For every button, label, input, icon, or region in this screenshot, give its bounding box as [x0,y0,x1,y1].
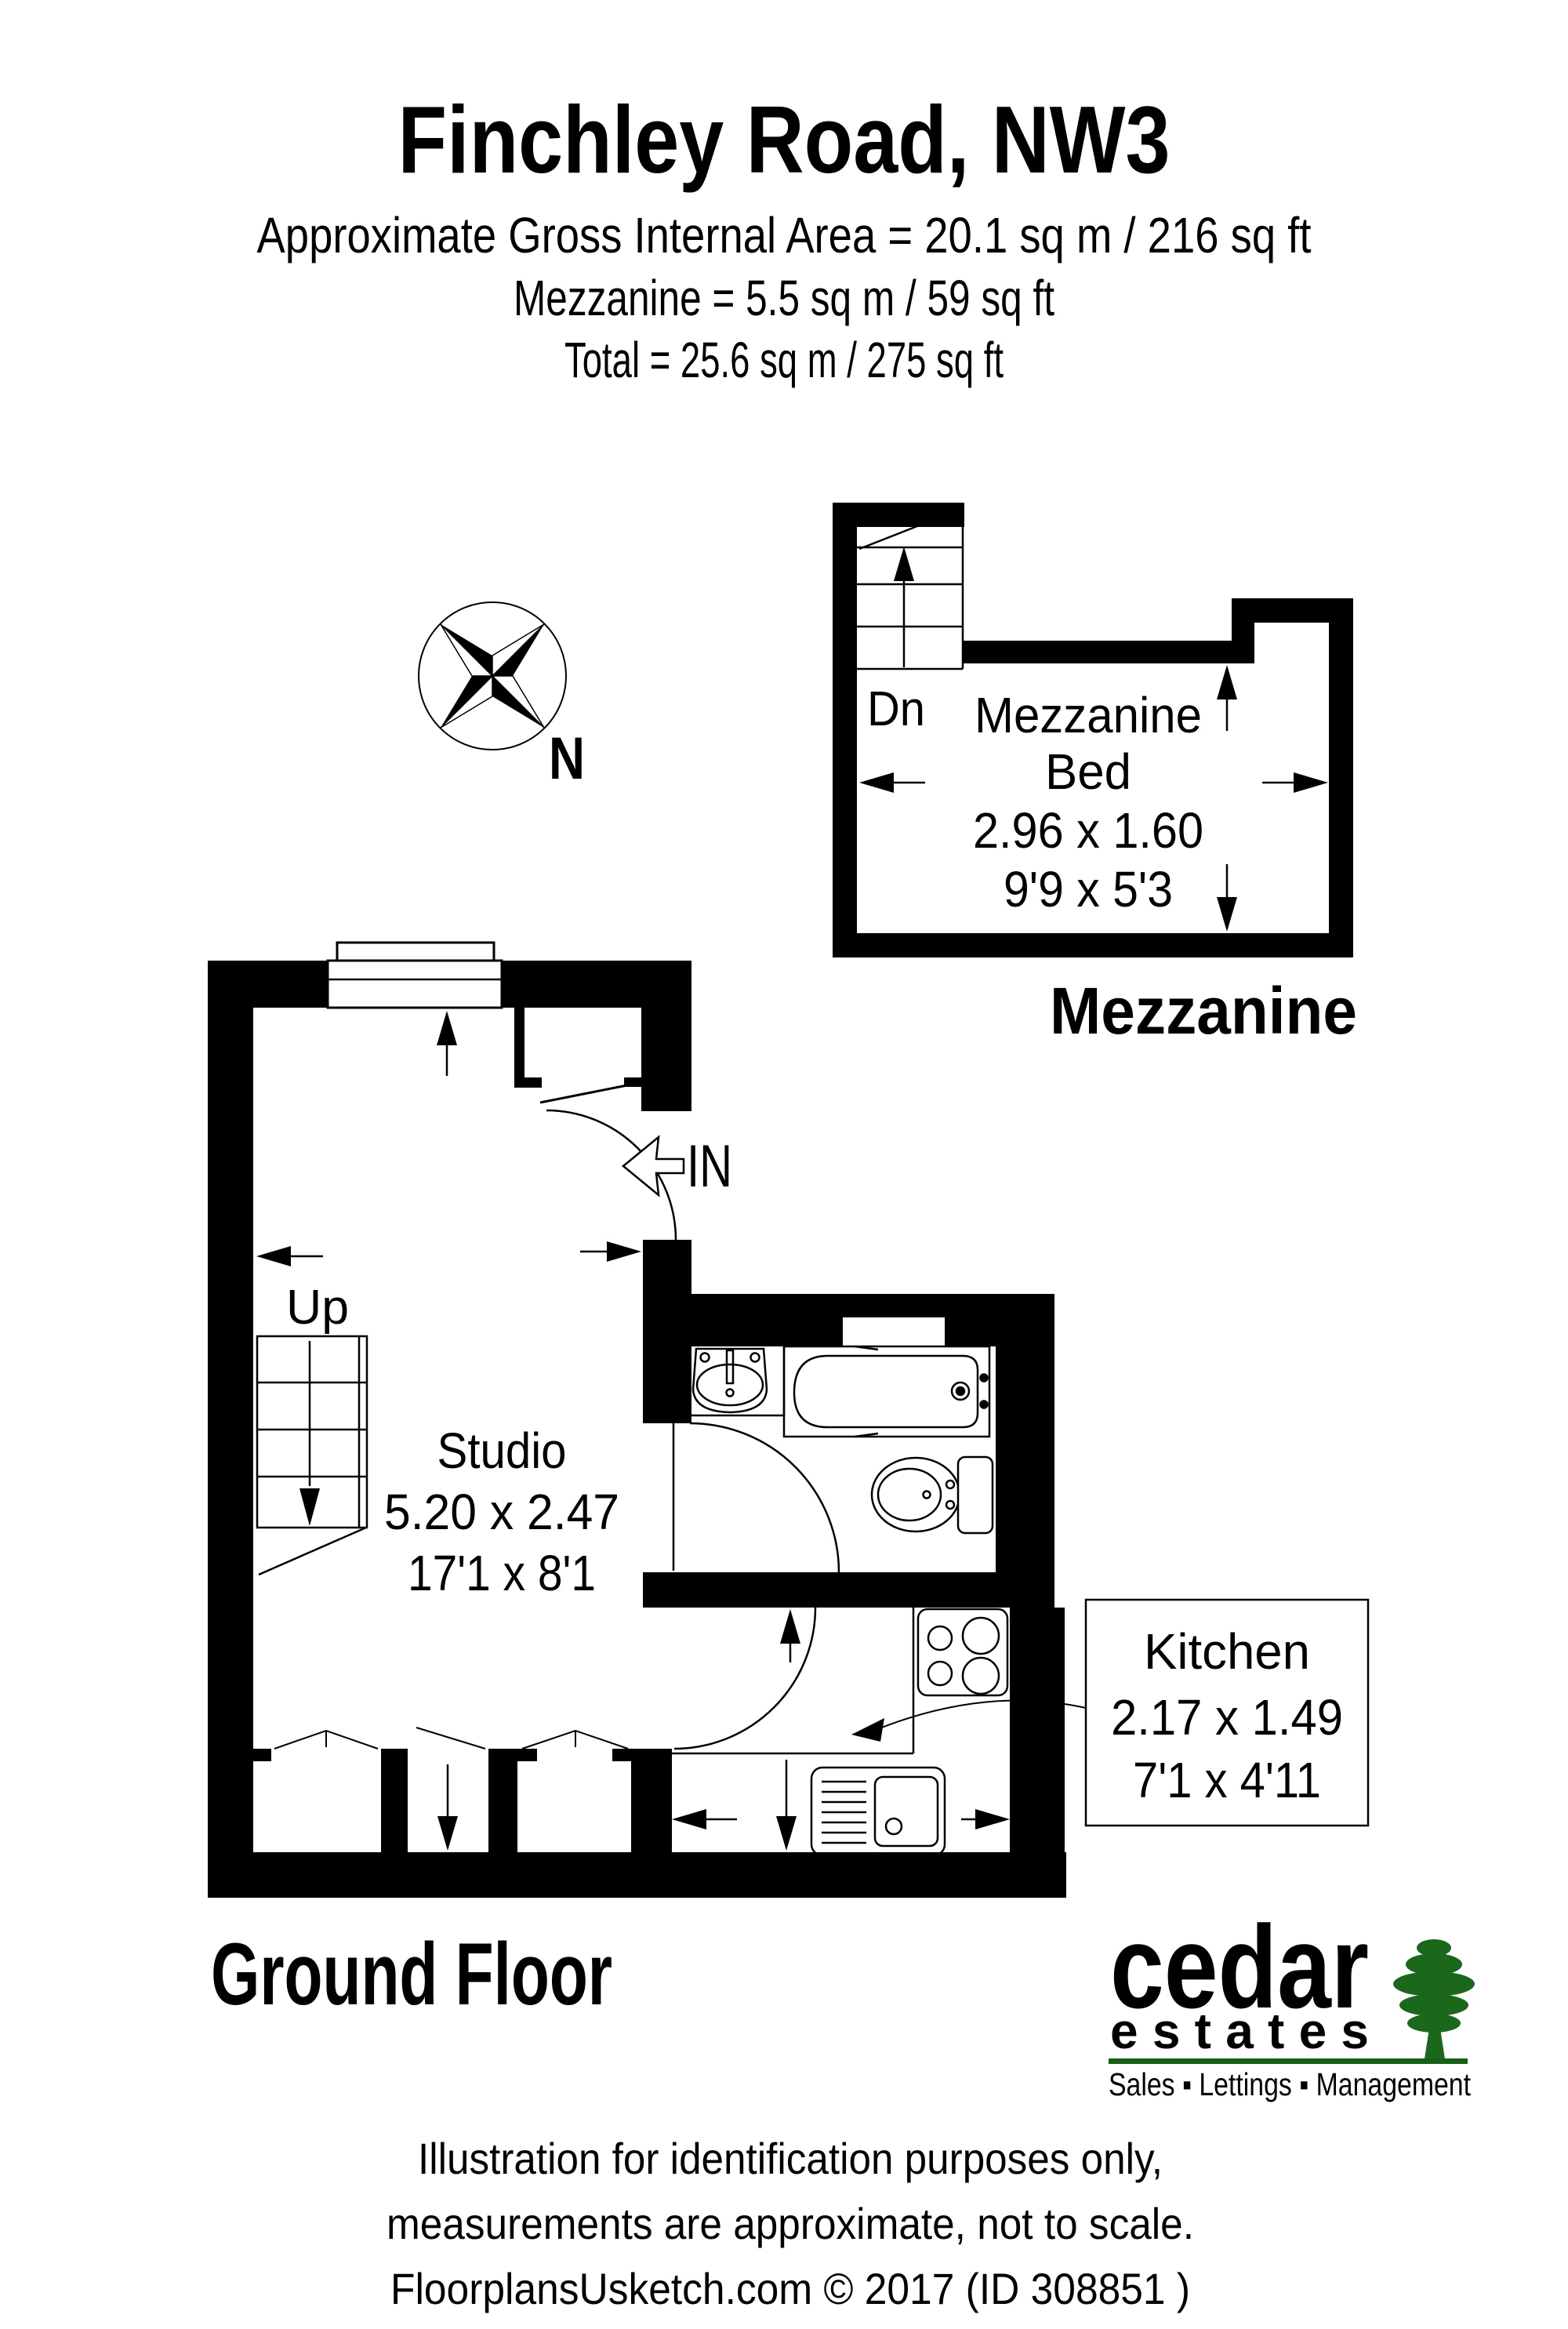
ground-dimension-arrowheads [256,1011,1010,1851]
kitchen-fixtures [666,1608,1007,1855]
mezzanine-room-name-1: Mezzanine [975,687,1202,743]
stairs-ground [257,1336,367,1575]
compass-north-label: N [549,725,585,792]
studio-name: Studio [437,1422,567,1479]
wall-segment [643,1572,1051,1608]
wall-segment [963,641,1232,663]
bathtub-icon [784,1346,989,1437]
wall-segment [641,961,691,1111]
floorplan-sheet: Finchley Road, NW3 Approximate Gross Int… [0,0,1568,2329]
floorplan-page: Finchley Road, NW3 Approximate Gross Int… [0,0,1568,2329]
wall-segment [517,1749,537,1761]
studio-dims-metric: 5.20 x 2.47 [384,1484,619,1540]
studio-dims-imperial: 17'1 x 8'1 [408,1545,596,1601]
wall-segment [631,1749,672,1852]
wall-segment [514,1008,524,1088]
mezzanine-dims-imperial: 9'9 x 5'3 [1004,861,1173,917]
wall-segment [208,961,253,1898]
wall-segment [208,1852,1066,1898]
footer: Illustration for identification purposes… [387,2134,1194,2313]
ground-floor-plan: IN Up Studio 5.20 x 2.47 17'1 x 8'1 Kitc… [208,943,1368,2023]
studio-window [328,943,502,1008]
wall-segment [524,1077,542,1088]
disclaimer-line-3: FloorplansUsketch.com © 2017 (ID 308851 … [390,2264,1190,2313]
wall-segment [833,503,857,957]
wall-segment [488,1749,517,1852]
stairs-down-arrowhead [299,1488,320,1526]
wall-segment [1329,598,1353,957]
kitchen-dims-imperial: 7'1 x 4'11 [1133,1752,1321,1808]
entrance-in-arrow: IN [623,1133,732,1200]
wall-segment [1010,1608,1065,1855]
compass-rose-icon: N [419,602,585,792]
toilet-icon [872,1457,993,1533]
bathroom-door-arc [690,1423,839,1572]
wall-segment [253,1749,271,1761]
mezzanine-plan: Dn Mezzanine Bed 2.96 x 1.60 9'9 x 5'3 M… [833,503,1357,1048]
disclaimer-line-2: measurements are approximate, not to sca… [387,2199,1194,2248]
kitchen-name: Kitchen [1144,1623,1310,1680]
bathroom-fixtures [674,1346,993,1533]
ground-stair-label: Up [286,1281,349,1335]
ground-floor-title: Ground Floor [211,1925,612,2023]
wall-segment [381,1749,408,1852]
area-line-2: Mezzanine = 5.5 sq m / 59 sq ft [514,270,1054,326]
header: Finchley Road, NW3 Approximate Gross Int… [257,86,1312,388]
tree-icon [1393,1939,1475,2064]
stairs-up-arrowhead [894,547,914,581]
mezzanine-floor-title: Mezzanine [1050,974,1357,1048]
in-arrow-icon [623,1137,684,1195]
cedar-estates-logo: cedar estates Sales ▪ Lettings ▪ Managem… [1109,1901,1475,2102]
kitchen-sink-icon [811,1768,945,1855]
wall-segment [612,1749,631,1761]
kitchen-dims-metric: 2.17 x 1.49 [1111,1689,1343,1746]
wall-segment [833,933,1353,957]
bathroom-window [843,1317,945,1346]
bathroom-door [673,1423,839,1572]
wall-segment [208,961,329,1008]
mezzanine-room-name-2: Bed [1045,743,1131,800]
kitchen-leader-arrowhead [851,1718,884,1742]
entrance-label: IN [687,1133,732,1200]
wall-segment [996,1294,1054,1608]
bay-window-casements [274,1728,628,1749]
entrance-door-leaf [540,1085,627,1103]
page-title: Finchley Road, NW3 [398,86,1171,193]
stairs-mezzanine [857,507,963,669]
logo-rule [1109,2058,1468,2064]
mezzanine-dims-metric: 2.96 x 1.60 [973,802,1203,859]
hob-icon [918,1609,1007,1695]
area-line-3: Total = 25.6 sq m / 275 sq ft [564,332,1004,388]
disclaimer-line-1: Illustration for identification purposes… [418,2134,1163,2183]
area-line-1: Approximate Gross Internal Area = 20.1 s… [257,207,1312,263]
mezzanine-stair-label: Dn [867,682,925,736]
logo-tagline: Sales ▪ Lettings ▪ Management [1109,2066,1471,2102]
